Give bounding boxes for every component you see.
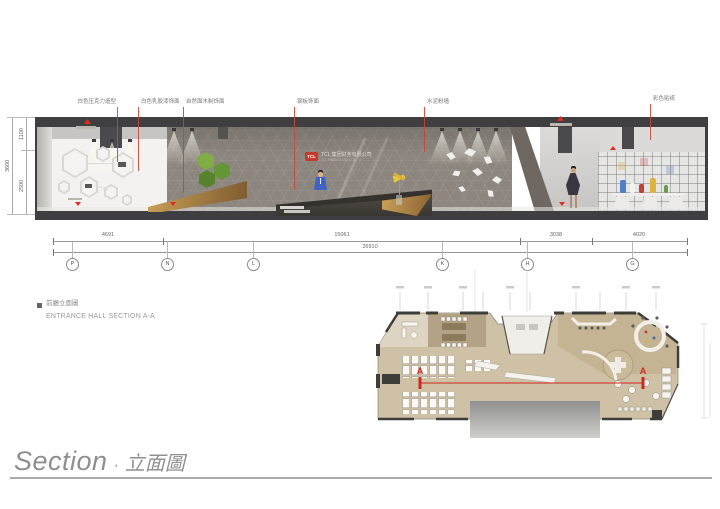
plan-elevator [529,324,538,330]
visitor-leg [575,195,577,208]
desk-step [280,206,304,209]
leader-line [183,107,184,193]
display-counter [612,193,686,196]
leader-line [138,107,139,171]
dim-tick [592,238,593,245]
plan-grid-ticks [400,292,656,310]
plan-elevator [516,324,525,330]
title-block-bullet [37,303,42,308]
level-marker-text [550,123,572,126]
level-marker-text [76,126,96,129]
dim-tick [7,117,35,118]
grid-stub [253,242,254,258]
ceiling-pier [622,127,634,149]
glass-tint [618,162,626,170]
plan-core-lobby [502,316,552,354]
dim-tick [7,214,35,215]
footer-title-separator: · [114,457,119,475]
colored-bottle-red [639,184,644,193]
tcl-logo: TCL [305,152,318,161]
dim-tick [53,238,54,245]
visitor-leg [570,195,572,208]
desk-step [284,210,310,213]
level-marker-text [68,198,82,200]
footer-title: Section · 立面圖 [14,446,185,477]
plan-meeting-room [428,314,486,347]
dim-tick [21,150,35,151]
glass-tint [666,166,674,174]
grid-stub [167,242,168,258]
dim-line-overall [53,252,687,253]
dim-tick [163,238,164,245]
grid-bubble-L: L [247,258,260,271]
spotlight [92,139,96,142]
dim-label-4020: 4020 [633,233,645,239]
ceiling-pier [558,127,572,153]
dim-label-3600: 3600 [6,160,12,172]
receptionist-shirt [320,178,321,184]
hexagon-shelf-item [118,162,126,167]
grid-stub [72,242,73,258]
leader-line [424,107,425,152]
spotlight [190,128,194,131]
annotation-white-latex: 白色乳胶漆饰面 [141,100,180,106]
dim-tick [520,238,521,245]
glass-tint [640,158,648,166]
grid-bubble-N: N [161,258,174,271]
plan-entrance-area [470,401,600,438]
display-stool [642,197,658,209]
plan-workstations [402,392,456,414]
display-stool [614,197,630,209]
dim-line-vertical-overall [12,117,13,215]
footer-title-en: Section [14,446,108,477]
leader-line [650,104,651,140]
annotation-cement-wall: 水泥粉墙 [427,100,449,106]
footer-title-cn: 立面圖 [125,447,185,476]
dim-label-15061: 15061 [334,233,349,239]
footer-rule [10,477,712,479]
grid-stub [442,242,443,258]
leader-line [294,107,295,190]
display-stool [668,197,684,209]
side-wall-return [37,127,52,211]
spotlight [128,139,132,142]
colored-bottle-blue [620,180,626,193]
dim-label-1100: 1100 [20,128,26,140]
presentation-board: TCL TCL 集团财务有限公司 TCL FINANCE CO.,LTD. [0,0,720,509]
spotlight [494,128,498,131]
plan-workstations [402,356,456,378]
title-block-en: ENTRANCE HALL SECTION A-A [46,313,155,320]
dim-tick [687,249,688,256]
dim-tick [53,249,54,256]
dim-line-vertical-inner [26,117,27,215]
ceiling-pier [218,127,228,139]
dim-tick [687,238,688,245]
dim-label-4691: 4691 [102,233,114,239]
plan-dim-text-marks [396,286,660,289]
hexagon-shelf-item [85,184,92,188]
leader-line [117,107,118,162]
floor-plan: A A [366,266,718,440]
flower-vase [396,195,402,205]
spotlight [440,128,444,131]
spotlight [110,139,114,142]
spotlight [172,128,176,131]
colored-bottle-white [630,183,635,193]
colored-bottle-yellow [650,178,656,193]
company-name-en: TCL FINANCE CO.,LTD. [321,159,356,162]
grid-bubble-P: P [66,258,79,271]
right-wall-edge [705,117,708,220]
dim-label-2500: 2500 [20,180,26,192]
plan-round-lounge [603,350,633,380]
grid-stub [632,242,633,258]
dim-label-3038: 3038 [550,233,562,239]
colored-bottle-green [664,185,668,193]
plan-right-dim-lines [701,324,710,418]
ceiling-slab [35,117,708,127]
section-marker-a-left: A [417,366,424,376]
annotation-white-acrylic: 白色压克力造型 [62,100,116,106]
title-block-cn: 前廳立面圖 [46,301,79,308]
dim-label-26910: 26910 [362,245,377,251]
spotlight [458,128,462,131]
grid-stub [527,242,528,258]
visitor-face [571,168,576,173]
receptionist-face [318,172,323,177]
annotation-colored-film: 彩色贴纸 [653,97,675,103]
annotation-natural-wood: 自然面木制饰面 [186,100,225,106]
spotlight [476,128,480,131]
flower-stem [399,182,400,195]
hexagon-connector-line [88,163,114,164]
section-marker-a-right: A [640,366,647,376]
annotation-steel-plate: 钢板饰面 [297,100,319,106]
